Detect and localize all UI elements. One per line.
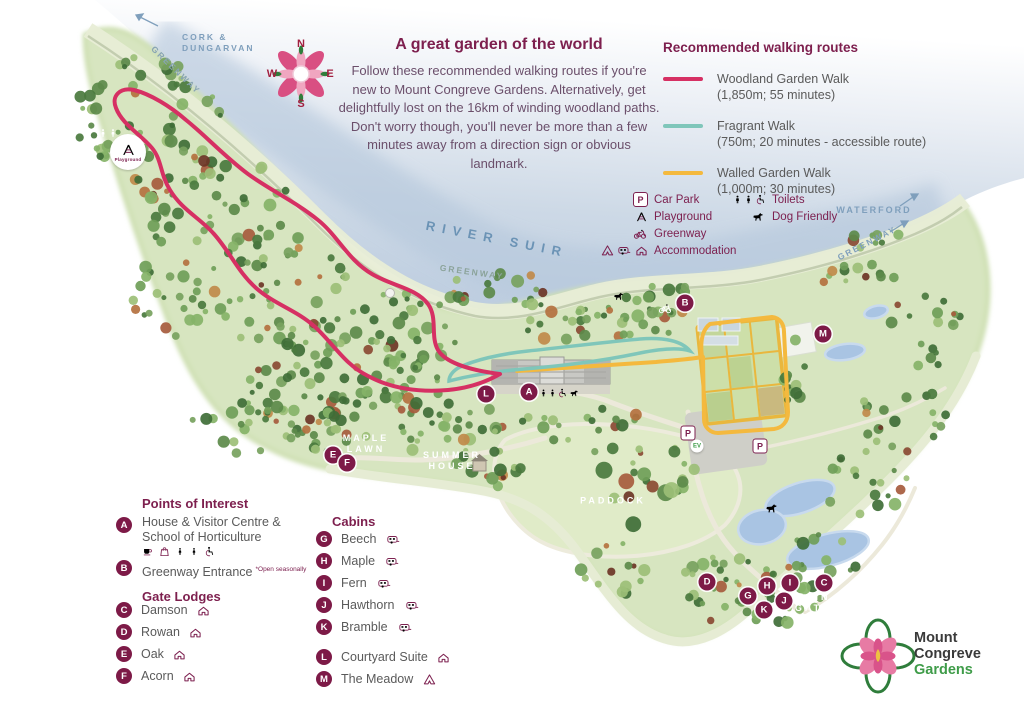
- legend-label: Greenway: [654, 228, 706, 240]
- tree: [295, 432, 301, 438]
- compass-n: N: [297, 38, 305, 50]
- tree: [389, 297, 398, 306]
- gate-lodge-rowan: D Rowan: [116, 624, 202, 640]
- tree: [289, 326, 296, 333]
- tree: [212, 191, 222, 201]
- tree: [589, 417, 596, 424]
- tree: [272, 361, 281, 370]
- tree: [545, 306, 557, 318]
- tree: [172, 332, 180, 340]
- tree: [400, 429, 406, 435]
- tree: [937, 422, 946, 431]
- toilets-map-icon: [99, 128, 118, 139]
- badge-i: I: [316, 575, 332, 591]
- tree: [134, 176, 142, 184]
- caravan-icon: [397, 621, 414, 634]
- tree: [389, 361, 398, 370]
- toilets-icon: [744, 194, 753, 205]
- tree: [211, 266, 216, 271]
- tree: [369, 315, 378, 324]
- tree: [575, 563, 588, 576]
- toilets-icon: [190, 546, 198, 557]
- tree: [417, 301, 424, 308]
- tree: [561, 334, 572, 345]
- house-icon: [635, 244, 648, 257]
- cabin-fern: I Fern: [316, 575, 393, 591]
- tree: [538, 332, 551, 345]
- tree: [889, 273, 899, 283]
- tree: [174, 81, 180, 87]
- tree: [632, 296, 641, 305]
- gate-lodge-acorn: F Acorn: [116, 668, 196, 684]
- tree: [311, 296, 323, 308]
- badge-c: C: [116, 602, 132, 618]
- tree: [647, 481, 659, 493]
- tree: [689, 464, 700, 475]
- badge-d: D: [116, 624, 132, 640]
- tree: [130, 54, 137, 61]
- map-marker-f: F: [339, 455, 356, 472]
- tree: [781, 616, 794, 629]
- wheelchair-icon: [204, 546, 215, 557]
- tree: [141, 272, 151, 282]
- tree: [685, 593, 693, 601]
- tree: [305, 378, 316, 389]
- tree: [295, 244, 303, 252]
- tree: [153, 289, 162, 298]
- tree: [177, 98, 189, 110]
- tree: [415, 438, 421, 444]
- cabins-title: Cabins: [332, 514, 375, 529]
- tree: [261, 262, 267, 268]
- tree: [444, 435, 452, 443]
- tree: [594, 312, 601, 319]
- tree: [244, 317, 254, 327]
- woodland-route-swatch: [663, 77, 703, 81]
- route-detail: (1,850m; 55 minutes): [717, 87, 849, 103]
- tree: [160, 322, 171, 333]
- tree: [563, 316, 569, 322]
- cabin-beech: G Beech: [316, 531, 402, 547]
- tree: [97, 153, 104, 160]
- tree: [930, 433, 938, 441]
- tree: [933, 350, 939, 356]
- tree: [257, 225, 264, 232]
- tree: [862, 273, 870, 281]
- tree: [894, 302, 901, 309]
- tree: [707, 617, 714, 624]
- legend-playground: Playground: [578, 208, 736, 225]
- tree: [484, 280, 491, 287]
- tree: [413, 336, 421, 344]
- poi-label-b: Greenway Entrance*Open seasonally: [142, 562, 306, 580]
- poi-a-facility-icons: [142, 546, 215, 557]
- tree: [151, 178, 163, 190]
- tree: [203, 309, 209, 315]
- tree: [255, 367, 262, 374]
- tree: [98, 80, 108, 90]
- lodge-label: Oak: [141, 647, 164, 661]
- tree: [237, 296, 243, 302]
- walled-route-swatch: [663, 171, 703, 175]
- tree: [951, 311, 956, 316]
- tree: [681, 461, 687, 467]
- tree: [250, 390, 255, 395]
- tree: [342, 397, 349, 404]
- tree: [617, 586, 628, 597]
- cabin-label: Maple: [341, 554, 375, 568]
- badge-m: M: [316, 671, 332, 687]
- tree: [314, 372, 325, 383]
- tree: [438, 421, 448, 431]
- tree: [536, 321, 543, 328]
- tree: [283, 373, 292, 382]
- tree: [737, 582, 742, 587]
- legend-dog-friendly: Dog Friendly: [728, 208, 837, 225]
- tree: [139, 261, 152, 274]
- tree: [292, 232, 304, 244]
- tree: [843, 278, 848, 283]
- tree: [852, 263, 863, 274]
- tree: [549, 435, 558, 444]
- badge-j: J: [316, 597, 332, 613]
- tree: [575, 309, 582, 316]
- tree: [261, 365, 272, 376]
- tree: [790, 335, 801, 346]
- house-icon: [183, 670, 196, 683]
- tree: [310, 431, 318, 439]
- tree: [227, 298, 233, 304]
- car-park-badge-2: P: [753, 439, 768, 454]
- tree: [625, 516, 641, 532]
- shop-icon: [159, 546, 170, 557]
- legend-car-park: P Car Park: [578, 191, 736, 208]
- tree: [816, 532, 821, 537]
- compass-rose: [273, 46, 330, 103]
- tree: [579, 330, 590, 341]
- tree: [886, 493, 891, 498]
- compass-e: E: [326, 68, 333, 80]
- tree: [838, 537, 846, 545]
- tree: [317, 394, 323, 400]
- meadow-label: The Meadow: [341, 672, 413, 686]
- tree: [820, 278, 828, 286]
- dog-map-icon-paddock: [764, 501, 781, 515]
- tree: [512, 297, 518, 303]
- tree: [442, 412, 452, 422]
- tree: [933, 317, 943, 327]
- tree: [620, 330, 628, 338]
- legend-accommodation: Accommodation: [578, 242, 736, 259]
- maple-lawn-label: MAPLELAWN: [343, 433, 390, 455]
- tree: [172, 208, 184, 220]
- facilities-legend-col2: Toilets Dog Friendly: [728, 191, 837, 225]
- tree: [284, 247, 294, 257]
- tree: [363, 345, 373, 355]
- lodge-label: Acorn: [141, 669, 174, 683]
- tree: [316, 419, 322, 425]
- tree: [244, 259, 250, 265]
- tree: [94, 145, 100, 151]
- toilets-icon: [733, 194, 742, 205]
- tree: [525, 327, 531, 333]
- tree: [625, 562, 633, 570]
- tree: [681, 283, 689, 291]
- tree: [189, 295, 197, 303]
- tree: [889, 498, 902, 511]
- map-marker-c: C: [816, 575, 833, 592]
- tree: [792, 561, 802, 571]
- tree: [176, 293, 184, 301]
- route-name: Fragrant Walk: [717, 118, 926, 134]
- tree: [901, 392, 911, 402]
- house-icon: [197, 604, 210, 617]
- tree: [565, 437, 571, 443]
- map-marker-k: K: [756, 602, 773, 619]
- tree: [453, 276, 461, 284]
- tree: [300, 367, 310, 377]
- legend-label: Dog Friendly: [772, 211, 837, 223]
- poi-title: Points of Interest: [142, 496, 248, 511]
- tree: [207, 214, 212, 219]
- tree: [246, 375, 255, 384]
- tree: [541, 415, 547, 421]
- tree: [276, 322, 284, 330]
- tree: [226, 406, 238, 418]
- tree: [237, 334, 245, 342]
- legend-greenway: Greenway: [578, 225, 736, 242]
- tree: [148, 220, 160, 232]
- tree: [526, 316, 534, 324]
- tree: [862, 409, 870, 417]
- tent-icon: [601, 244, 614, 257]
- tree: [302, 425, 311, 434]
- tree: [182, 178, 188, 184]
- tree: [373, 338, 380, 345]
- legend-toilets: Toilets: [728, 191, 837, 208]
- tree: [840, 262, 849, 271]
- tree: [630, 460, 635, 465]
- tree: [723, 577, 728, 582]
- tree: [205, 168, 216, 179]
- car-park-badge-1: P: [681, 426, 696, 441]
- tree: [869, 479, 876, 486]
- tree: [896, 485, 906, 495]
- tree: [797, 537, 810, 550]
- legend-label: Playground: [654, 211, 712, 223]
- tree: [697, 558, 710, 571]
- tree: [165, 135, 178, 148]
- tree: [478, 425, 487, 434]
- cabin-maple: H Maple: [316, 553, 401, 569]
- tree: [620, 541, 625, 546]
- tree: [310, 350, 320, 360]
- tree: [904, 475, 910, 481]
- tree: [264, 325, 270, 331]
- tree: [853, 473, 860, 480]
- tree: [164, 221, 176, 233]
- tree: [190, 180, 200, 190]
- tree: [269, 389, 281, 401]
- map-marker-b: B: [677, 295, 694, 312]
- tree: [407, 375, 416, 384]
- tree: [418, 431, 424, 437]
- tree: [252, 235, 262, 245]
- tree: [288, 332, 296, 340]
- tree: [494, 464, 507, 477]
- house-icon: [437, 651, 450, 664]
- map-marker-l: L: [478, 386, 495, 403]
- tree: [638, 319, 648, 329]
- tree: [90, 102, 102, 114]
- lodge-label: Damson: [141, 603, 188, 617]
- tree: [161, 295, 166, 300]
- tree: [941, 410, 950, 419]
- tree: [287, 434, 296, 443]
- bicycle-map-icon: [657, 302, 673, 315]
- tree: [651, 326, 660, 335]
- tree: [334, 316, 340, 322]
- greenway-icon: [632, 227, 648, 240]
- tree: [591, 448, 598, 455]
- tree: [383, 345, 391, 353]
- courtyard-suite-row: L Courtyard Suite: [316, 649, 450, 665]
- tree: [643, 291, 654, 302]
- badge-g: G: [316, 531, 332, 547]
- toilets-icon: [176, 546, 184, 557]
- tree: [398, 406, 406, 414]
- tree: [863, 448, 870, 455]
- route-name: Woodland Garden Walk: [717, 71, 849, 87]
- caravan-icon: [616, 244, 633, 257]
- tree: [202, 96, 213, 107]
- tree: [397, 367, 404, 374]
- tree: [240, 194, 248, 202]
- cafe-icon: [142, 546, 153, 557]
- tree: [158, 203, 171, 216]
- tree: [907, 313, 913, 319]
- tree: [264, 407, 272, 415]
- tree: [669, 446, 681, 458]
- tree: [827, 266, 837, 276]
- cabin-label: Beech: [341, 532, 376, 546]
- tree: [267, 302, 275, 310]
- main-gate-label: MAINGATE: [795, 592, 831, 614]
- tree: [257, 447, 264, 454]
- tree: [311, 445, 320, 454]
- tree: [135, 281, 145, 291]
- tree: [274, 280, 280, 286]
- tree: [483, 287, 495, 299]
- tree: [913, 361, 923, 371]
- tree: [637, 467, 651, 481]
- tree: [484, 404, 495, 415]
- tree: [527, 271, 535, 279]
- tree: [607, 568, 615, 576]
- tree: [876, 272, 886, 282]
- tree: [872, 500, 884, 512]
- caravan-icon: [404, 599, 421, 612]
- tree: [324, 322, 335, 333]
- tree: [264, 199, 277, 212]
- cabin-label: Bramble: [341, 620, 388, 634]
- tree: [177, 270, 189, 282]
- cabin-bramble: K Bramble: [316, 619, 414, 635]
- tree: [323, 348, 332, 357]
- tree: [711, 560, 719, 568]
- tree: [271, 401, 284, 414]
- tree: [244, 405, 254, 415]
- tree: [329, 411, 340, 422]
- tree: [918, 341, 925, 348]
- tree: [892, 468, 897, 473]
- tree: [282, 187, 290, 195]
- tree: [375, 330, 384, 339]
- tree: [489, 447, 499, 457]
- courtyard-label: Courtyard Suite: [341, 650, 428, 664]
- cabin-label: Fern: [341, 576, 367, 590]
- tree: [317, 274, 322, 279]
- tree: [465, 421, 472, 428]
- tree: [666, 330, 672, 336]
- tree: [91, 132, 97, 138]
- tree: [191, 154, 198, 161]
- map-marker-h: H: [759, 578, 776, 595]
- tree: [877, 479, 885, 487]
- tree: [410, 397, 422, 409]
- walled-garden: [697, 318, 787, 424]
- intro-body-text: Follow these recommended walking routes …: [338, 62, 660, 173]
- tree: [262, 416, 269, 423]
- tree: [455, 416, 462, 423]
- tree: [405, 296, 410, 301]
- tree: [387, 336, 395, 344]
- tree: [288, 405, 299, 416]
- route-item-woodland: Woodland Garden Walk (1,850m; 55 minutes…: [663, 71, 963, 103]
- tree: [837, 454, 845, 462]
- tree: [254, 334, 264, 344]
- tree: [129, 296, 138, 305]
- tree: [419, 355, 428, 364]
- house-facilities-icons: [540, 388, 581, 398]
- tree: [878, 425, 883, 430]
- tree: [380, 391, 392, 403]
- tree: [237, 398, 247, 408]
- tree: [821, 555, 831, 565]
- tree: [337, 339, 345, 347]
- compass-s: S: [297, 98, 304, 110]
- tree: [511, 275, 524, 288]
- tree: [190, 417, 196, 423]
- tree: [135, 70, 146, 81]
- facilities-legend-col1: P Car Park Playground Greenway Accommoda…: [578, 191, 736, 259]
- route-item-fragrant: Fragrant Walk (750m; 20 minutes - access…: [663, 118, 963, 150]
- tree: [245, 419, 253, 427]
- playground-icon: [635, 210, 648, 223]
- tree: [122, 64, 127, 69]
- cabin-hawthorn: J Hawthorn: [316, 597, 421, 613]
- tree: [715, 581, 727, 593]
- tree: [591, 548, 602, 559]
- tree: [335, 263, 346, 274]
- tree: [75, 91, 87, 103]
- tree: [238, 421, 245, 428]
- tree: [828, 464, 838, 474]
- map-marker-j: J: [776, 593, 793, 610]
- tree: [332, 425, 341, 434]
- tree: [232, 448, 242, 458]
- route-name: Walled Garden Walk: [717, 165, 835, 181]
